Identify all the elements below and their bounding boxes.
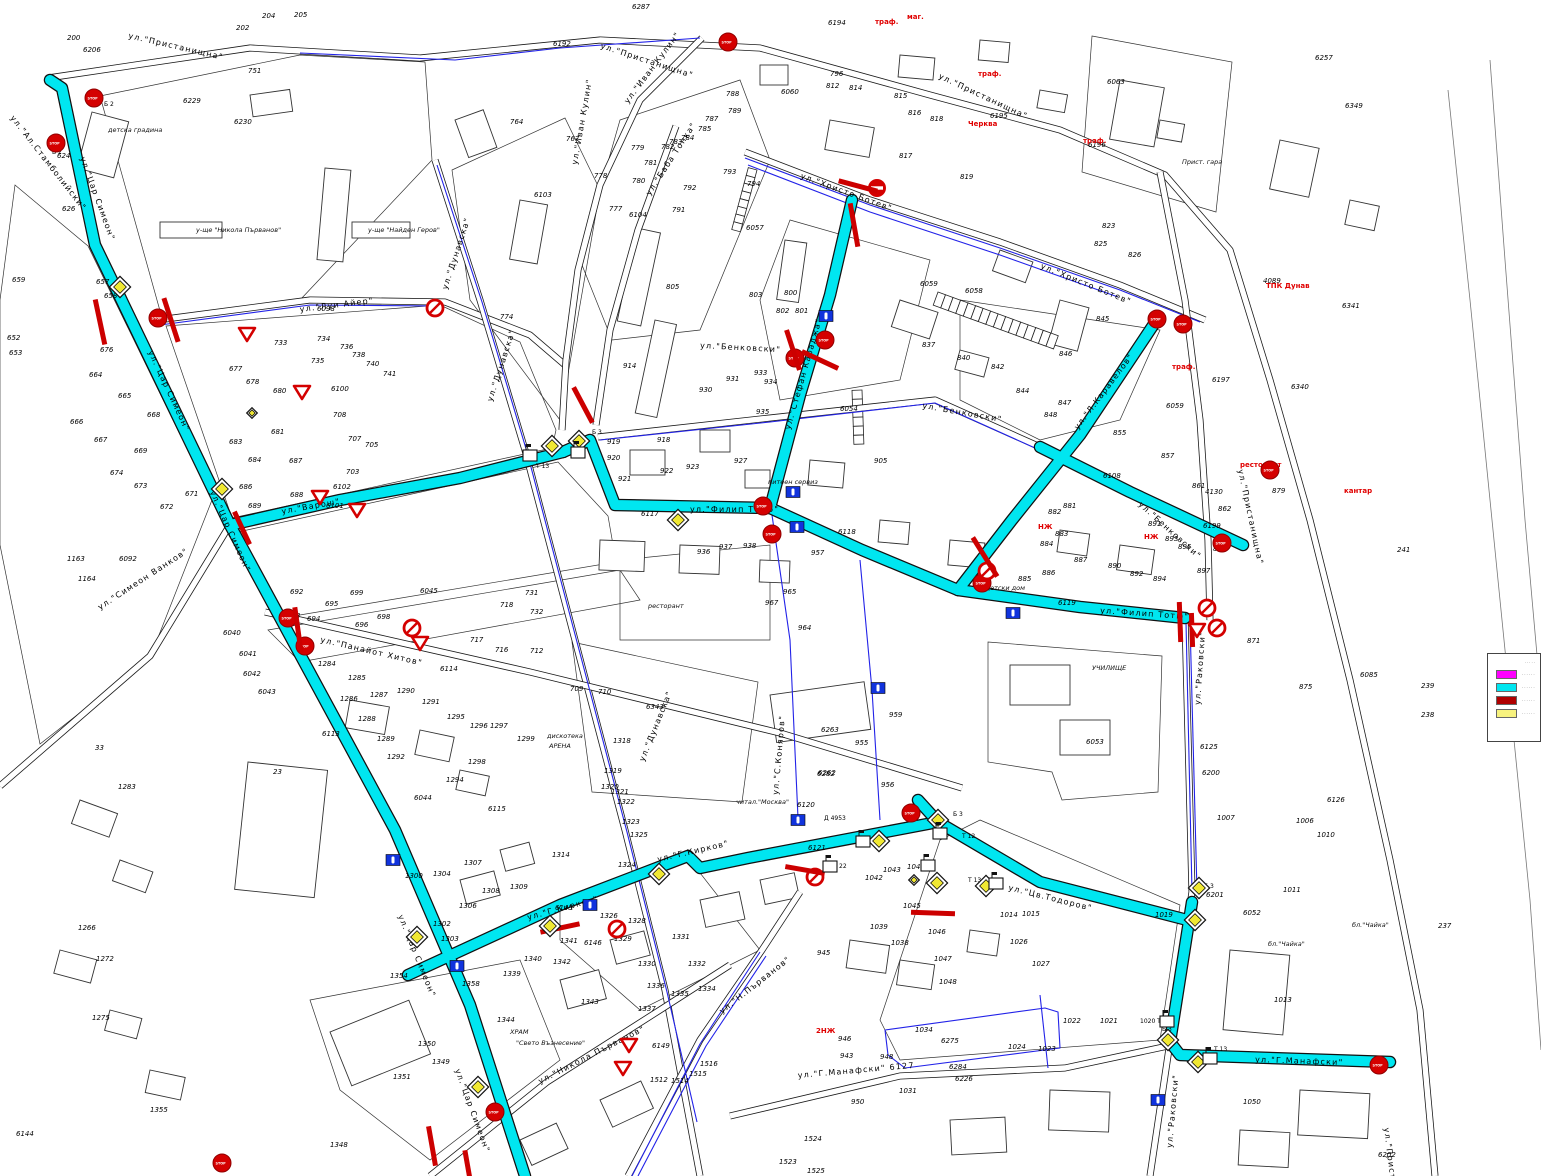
parcel-number: 1349 (432, 1058, 450, 1066)
stop-sign-text: STOP (1177, 323, 1188, 327)
parcel-number: 676 (100, 346, 114, 354)
parcel-number: 6100 (331, 385, 349, 393)
parcel-number: 741 (383, 370, 396, 378)
building (1049, 1090, 1110, 1132)
stop-sign-text: STOP (1373, 1064, 1384, 1068)
parcel-number: 1021 (1100, 1017, 1118, 1025)
parcel-number: 855 (1113, 429, 1127, 437)
parcel-number: 1337 (638, 1005, 656, 1013)
parcel-number: 1303 (441, 935, 459, 943)
parcel-number: 905 (874, 457, 888, 465)
parcel-number: 955 (855, 739, 869, 747)
parcel-number: 779 (631, 144, 645, 152)
parcel-number: 1019 (1155, 911, 1173, 919)
parcel-number: 930 (699, 386, 713, 394)
street-label: ул."Никола Първанов" (537, 1024, 647, 1086)
parcel-number: 735 (311, 357, 325, 365)
stop-sign-text: STOP (88, 97, 99, 101)
parcel-number: 6125 (1200, 743, 1218, 751)
parcel-number: 6060 (781, 88, 799, 96)
parcel-number: 6199 (1203, 522, 1221, 530)
building (1110, 80, 1165, 147)
road-closure-bar (462, 1150, 473, 1176)
building (330, 1000, 431, 1086)
poi-label: читал."Москва" (736, 798, 789, 806)
parcel-number: 794 (747, 180, 760, 188)
parcel-number: 703 (346, 468, 359, 476)
parcel-number: 1047 (934, 955, 952, 963)
building (54, 950, 97, 983)
parcel-number: 777 (609, 205, 623, 213)
parcel-number: 890 (1108, 562, 1122, 570)
parcel-number: 6040 (223, 629, 241, 637)
parcel-number: 923 (686, 463, 699, 471)
stop-sign-text: STOP (216, 1162, 227, 1166)
road-casing (0, 528, 228, 786)
road-closure-bar (1177, 602, 1183, 642)
parcel-number: 959 (889, 711, 903, 719)
parcel-number: 1042 (865, 874, 883, 882)
parcel-number: 1288 (358, 715, 376, 723)
parcel-number: 1039 (870, 923, 888, 931)
poi-label: "Свето Възнесение" (516, 1039, 585, 1047)
parcel-number: 665 (118, 392, 132, 400)
parcel-number: 689 (248, 502, 262, 510)
parcel-number: 957 (811, 549, 825, 557)
parcel-number: 673 (134, 482, 147, 490)
parcel-number: 708 (333, 411, 347, 419)
parcel-number: 1330 (638, 960, 656, 968)
parcel-number: 1043 (883, 866, 901, 874)
parcel-number: 6063 (1107, 78, 1125, 86)
parcel-number: 819 (960, 173, 974, 181)
street-label: ул."Цар Симеон" (146, 349, 191, 433)
parcel-number: 1027 (1032, 960, 1050, 968)
building (1223, 950, 1290, 1035)
parcel-number: 946 (838, 1035, 852, 1043)
parcel-number: 1343 (581, 998, 599, 1006)
parcel-number: 814 (849, 84, 862, 92)
parcel-number: 885 (1018, 575, 1032, 583)
parcel-number: 734 (317, 335, 330, 343)
water-main-line (1040, 995, 1048, 1068)
poi-label: у-ще "Никола Първанов" (195, 226, 281, 234)
parcel-number: 844 (1016, 387, 1029, 395)
parcel-number: 698 (377, 613, 391, 621)
building (878, 520, 910, 545)
parcel-number: 1014 (1000, 911, 1018, 919)
parcel-number: 931 (726, 375, 739, 383)
parcel-number: 6113 (322, 730, 340, 738)
parcel-number: 205 (294, 11, 308, 19)
street-label: ул."Бенковски" (922, 401, 1003, 424)
poi-label-red: маг. (907, 13, 924, 21)
sign-plate-icon (523, 450, 537, 461)
parcel-number: 936 (697, 548, 711, 556)
parcel-number: 927 (734, 457, 748, 465)
poi-label: детска градина (107, 126, 162, 134)
parcel-number: 6058 (965, 287, 983, 295)
parcel-number: 789 (728, 107, 742, 115)
parcel-number: 751 (248, 67, 261, 75)
parcel-number: 1514 (671, 1077, 689, 1085)
street-label: ул."Симеон Ванков" (96, 546, 190, 611)
parcel-number: 699 (350, 589, 364, 597)
legend-item: ······· (1496, 670, 1536, 679)
parcel-number: 1512 (650, 1076, 668, 1084)
parcel-number: 791 (672, 206, 685, 214)
parcel-number: 6284 (949, 1063, 967, 1071)
parcel-number: 921 (618, 475, 631, 483)
sign-plate-icon (1203, 1053, 1217, 1064)
building (600, 1081, 653, 1127)
market-stall (854, 435, 864, 444)
building (846, 940, 890, 973)
poi-label: УЧИЛИЩЕ (1092, 664, 1127, 672)
parcel-number: 1351 (393, 1073, 411, 1081)
parcel-number: 707 (348, 435, 362, 443)
legend-swatch (1496, 696, 1517, 705)
market-stall (732, 222, 743, 232)
parcel-number: 1307 (464, 859, 482, 867)
market-stall (853, 426, 863, 435)
road-closure-bar (426, 1126, 438, 1166)
sign-code-label: Т 13 (1213, 1046, 1227, 1053)
parcel-number: 837 (922, 341, 936, 349)
parcel-number: 934 (764, 378, 777, 386)
legend-header: ····· (1496, 660, 1536, 666)
building (520, 1123, 568, 1165)
parcel-number: 1294 (446, 776, 464, 784)
parcel-number: 6197 (1212, 376, 1230, 384)
parcel-number: 694 (307, 615, 320, 623)
building (1037, 90, 1068, 113)
parcel-number: 1332 (688, 960, 706, 968)
parcel-number: 652 (7, 334, 21, 342)
legend-swatch (1496, 709, 1517, 718)
parcel-number: 4130 (1205, 488, 1223, 496)
parcel-number: 1024 (1008, 1043, 1026, 1051)
parcel-number: 6149 (652, 1042, 670, 1050)
sign-code-label: Б 3 (592, 429, 602, 436)
parcel-number: 937 (719, 543, 733, 551)
parcel-number: 1291 (422, 698, 440, 706)
legend-item: ······· (1496, 683, 1536, 692)
parcel-number: 732 (530, 608, 544, 616)
poi-label: бл."Чайка" (1268, 940, 1305, 948)
legend-swatch (1496, 670, 1517, 679)
parcel-number: 919 (607, 438, 621, 446)
parcel-number: 857 (1161, 452, 1175, 460)
parcel-number: 1045 (903, 902, 921, 910)
sign-code-label: Б 3 (953, 811, 963, 818)
parcel-number: 840 (957, 354, 971, 362)
building (1157, 120, 1185, 142)
parcel-number: 1013 (1274, 996, 1292, 1004)
parcel-number: 6120 (797, 801, 815, 809)
parcel-number: 774 (500, 313, 513, 321)
parcel-number: 1524 (804, 1135, 822, 1143)
parcel-number: 967 (765, 599, 779, 607)
building (317, 168, 351, 262)
parcel-block (268, 570, 640, 662)
parcel-number: 238 (1421, 711, 1435, 719)
street-label: ул."Бенковски" (700, 341, 781, 354)
yield-sign-icon (349, 504, 365, 517)
parcel-number: 6263 (821, 726, 839, 734)
parcel-number: 6230 (234, 118, 252, 126)
parcel-number: 846 (1059, 350, 1073, 358)
parcel-number: 1034 (915, 1026, 933, 1034)
building (1010, 665, 1070, 705)
parcel-number: 785 (698, 125, 712, 133)
parcel-number: 1339 (503, 970, 521, 978)
parcel-number: 709 (570, 685, 584, 693)
map-canvas: 2002022042056206622962306246267516192619… (0, 0, 1541, 1176)
parcel-number: 6200 (1202, 769, 1220, 777)
parcel-number: 1295 (447, 713, 465, 721)
parcel-number: 1358 (462, 980, 480, 988)
parcel-number: 1164 (78, 575, 96, 583)
parcel-number: 6287 (632, 3, 650, 11)
parcel-number: 736 (340, 343, 354, 351)
info-sign-glyph (797, 817, 800, 824)
street-label: ул."Раковски" (1165, 1074, 1180, 1148)
parcel-number: 879 (1272, 487, 1286, 495)
parcel-number: 894 (1153, 575, 1166, 583)
yield-sign-icon (615, 1062, 631, 1075)
parcel-number: 6114 (440, 665, 458, 673)
stop-sign-text: STOP (152, 317, 163, 321)
parcel-number: 1022 (1063, 1017, 1081, 1025)
parcel-number: 1314 (552, 851, 570, 859)
parcel-number: 740 (366, 360, 380, 368)
parcel-number: 1007 (1217, 814, 1235, 822)
parcel-number: 1046 (928, 928, 946, 936)
parcel-number: 6108 (1103, 472, 1121, 480)
parcel-number: 659 (12, 276, 26, 284)
parcel-number: 6226 (955, 1075, 973, 1083)
parcel-number: 897 (1197, 567, 1211, 575)
legend-label: ······· (1522, 711, 1536, 716)
parcel-number: 1010 (1317, 831, 1335, 839)
parcel-number: 33 (95, 744, 104, 752)
parcel-number: 671 (185, 490, 198, 498)
parcel-number: 712 (530, 647, 544, 655)
parcel-number: 887 (1074, 556, 1088, 564)
parcel-number: 948 (880, 1053, 894, 1061)
road-closure-bar (911, 910, 955, 917)
parcel-number: 945 (817, 949, 831, 957)
building (978, 40, 1010, 63)
parcel-number: 886 (1042, 569, 1056, 577)
terrain-line (1490, 60, 1541, 700)
parcel-number: 688 (290, 491, 304, 499)
parcel-number: 731 (525, 589, 538, 597)
sign-code-label: Т 13 (535, 463, 549, 470)
stop-sign-text: STOP (722, 41, 733, 45)
parcel-number: 914 (623, 362, 636, 370)
legend-item: ······· (1496, 696, 1536, 705)
sign-plate-flag (1206, 1047, 1211, 1050)
parcel-number: 1011 (1283, 886, 1301, 894)
parcel-number: 881 (1063, 502, 1076, 510)
parcel-number: 1515 (689, 1070, 707, 1078)
parcel-number: 6103 (534, 191, 552, 199)
parcel-number: 6146 (584, 939, 602, 947)
parcel-number: 6192 (553, 40, 571, 48)
parcel-number: 1026 (1010, 938, 1028, 946)
parcel-number: 1355 (150, 1106, 168, 1114)
parcel-number: 6118 (838, 528, 856, 536)
street-label: ул."Пристанищна" (1382, 1127, 1403, 1176)
parcel-number: 1335 (671, 990, 689, 998)
parcel-number: 6206 (83, 46, 101, 54)
parcel-number: 1341 (560, 937, 578, 945)
sign-plate-flag (526, 444, 531, 447)
stop-sign-text: STOP (976, 582, 987, 586)
parcel-number: 1309 (510, 883, 528, 891)
parcel-number: 1525 (807, 1167, 825, 1175)
street-label: ул."Варош" (281, 497, 341, 516)
parcel-number: 686 (239, 483, 253, 491)
poi-label: АРЕНА (548, 742, 571, 750)
parcel-number: 653 (9, 349, 22, 357)
sign-plate-flag (826, 855, 831, 858)
parcel-number: 1306 (459, 902, 477, 910)
parcel-number: 950 (851, 1098, 865, 1106)
sign-code-label: Б 2 (104, 101, 114, 108)
parcel-number: 1336 (647, 982, 665, 990)
parcel-number: 818 (930, 115, 944, 123)
parcel-number: 847 (1058, 399, 1072, 407)
road-closure-bar (93, 299, 107, 345)
parcel-number: 684 (248, 456, 261, 464)
parcel-number: 805 (666, 283, 680, 291)
stop-sign-text: STOP (766, 533, 777, 537)
parcel-number: 935 (756, 408, 770, 416)
parcel-number: 657 (96, 278, 110, 286)
building (112, 860, 152, 893)
parcel-number: 664 (89, 371, 102, 379)
parcel-number: 781 (644, 159, 657, 167)
street-label: ул."Раковски" (1193, 631, 1207, 705)
stop-sign-text: STOP (1216, 542, 1227, 546)
parcel-number: 882 (1048, 508, 1062, 516)
building (1298, 1090, 1370, 1139)
parcel-number: 6275 (941, 1037, 959, 1045)
parcel-number: 6121 (808, 844, 826, 852)
parcel-number: 237 (1438, 922, 1452, 930)
parcel-number: 1523 (779, 1158, 797, 1166)
building (825, 120, 875, 157)
sign-plate-flag (1163, 1010, 1168, 1013)
building (1345, 200, 1380, 231)
parcel-number: 6340 (1291, 383, 1309, 391)
parcel-number: 933 (754, 369, 767, 377)
parcel-number: 6102 (333, 483, 351, 491)
parcel-number: 1342 (553, 958, 571, 966)
stop-sign-text: STOP (819, 339, 830, 343)
building (967, 930, 1000, 956)
parcel-number: 6349 (1345, 102, 1363, 110)
parcel-number: 683 (229, 438, 242, 446)
parcel-number: 1318 (613, 737, 631, 745)
yield-sign-icon (294, 386, 310, 399)
building (145, 1070, 185, 1100)
parcel-number: 1272 (96, 955, 114, 963)
parcel-number: 1516 (700, 1060, 718, 1068)
sign-plate-flag (992, 872, 997, 875)
parcel-number: 815 (894, 92, 908, 100)
parcel-number: 672 (160, 503, 174, 511)
parcel-number: 1344 (497, 1016, 515, 1024)
parcel-number: 1322 (617, 798, 635, 806)
building (235, 762, 328, 898)
parcel-number: 817 (899, 152, 913, 160)
poi-label: бл."Чайка" (1352, 921, 1389, 929)
parcel-number: 884 (1040, 540, 1053, 548)
parcel-number: 1325 (630, 831, 648, 839)
sign-plate-icon (921, 860, 935, 871)
street-label: ул."Пристанищна" (937, 72, 1029, 121)
parcel-number: 6045 (420, 587, 438, 595)
poi-label: питеен сервиз (768, 478, 818, 486)
parcel-number: 6229 (183, 97, 201, 105)
building (105, 1010, 142, 1039)
poi-label-red: траф. (978, 70, 1001, 78)
stop-sign-text: STOP (1151, 318, 1162, 322)
building (760, 65, 788, 85)
parcel-number: 1331 (672, 933, 690, 941)
parcel-number: 6043 (258, 688, 276, 696)
parcel-number: 1326 (600, 912, 618, 920)
stop-sign-text: STOP (50, 142, 61, 146)
sign-plate-flag (574, 441, 579, 444)
parcel-number: 920 (607, 454, 621, 462)
sign-plate-flag (936, 822, 941, 825)
parcel-number: 1321 (611, 788, 629, 796)
highlighted-route (938, 822, 1195, 922)
parcel-number: 6195 (990, 112, 1008, 120)
yield-sign-icon (239, 328, 255, 341)
parcel-number: 1290 (397, 687, 415, 695)
street-label: ул."Л.Каравелов" (1072, 352, 1135, 431)
sign-plate-flag (859, 830, 864, 833)
building (415, 730, 454, 762)
parcel-number: 666 (70, 418, 84, 426)
parcel-number: 6282 (817, 770, 835, 778)
parcel-number: 1354 (390, 972, 408, 980)
parcel-number: 1050 (1243, 1098, 1261, 1106)
stop-sign-text: STOP (905, 812, 916, 816)
sign-plate-icon (989, 878, 1003, 889)
street-label: ул."Пристанищна" (1236, 469, 1265, 566)
building (950, 1117, 1007, 1155)
poi-label-red: 2НЖ (816, 1027, 836, 1035)
parcel-number: 1006 (1296, 817, 1314, 825)
legend-label: ······· (1522, 698, 1536, 703)
parcel-number: 1297 (490, 722, 508, 730)
parcel-number: 6085 (1360, 671, 1378, 679)
parcel-number: 1328 (628, 917, 646, 925)
parcel-number: 6194 (828, 19, 846, 27)
parcel-number: 1283 (118, 783, 136, 791)
parcel-number: 241 (1397, 546, 1410, 554)
legend-item: ······· (1496, 709, 1536, 718)
parcel-number: 1275 (92, 1014, 110, 1022)
city-map: 2002022042056206622962306246267516192619… (0, 0, 1541, 1176)
